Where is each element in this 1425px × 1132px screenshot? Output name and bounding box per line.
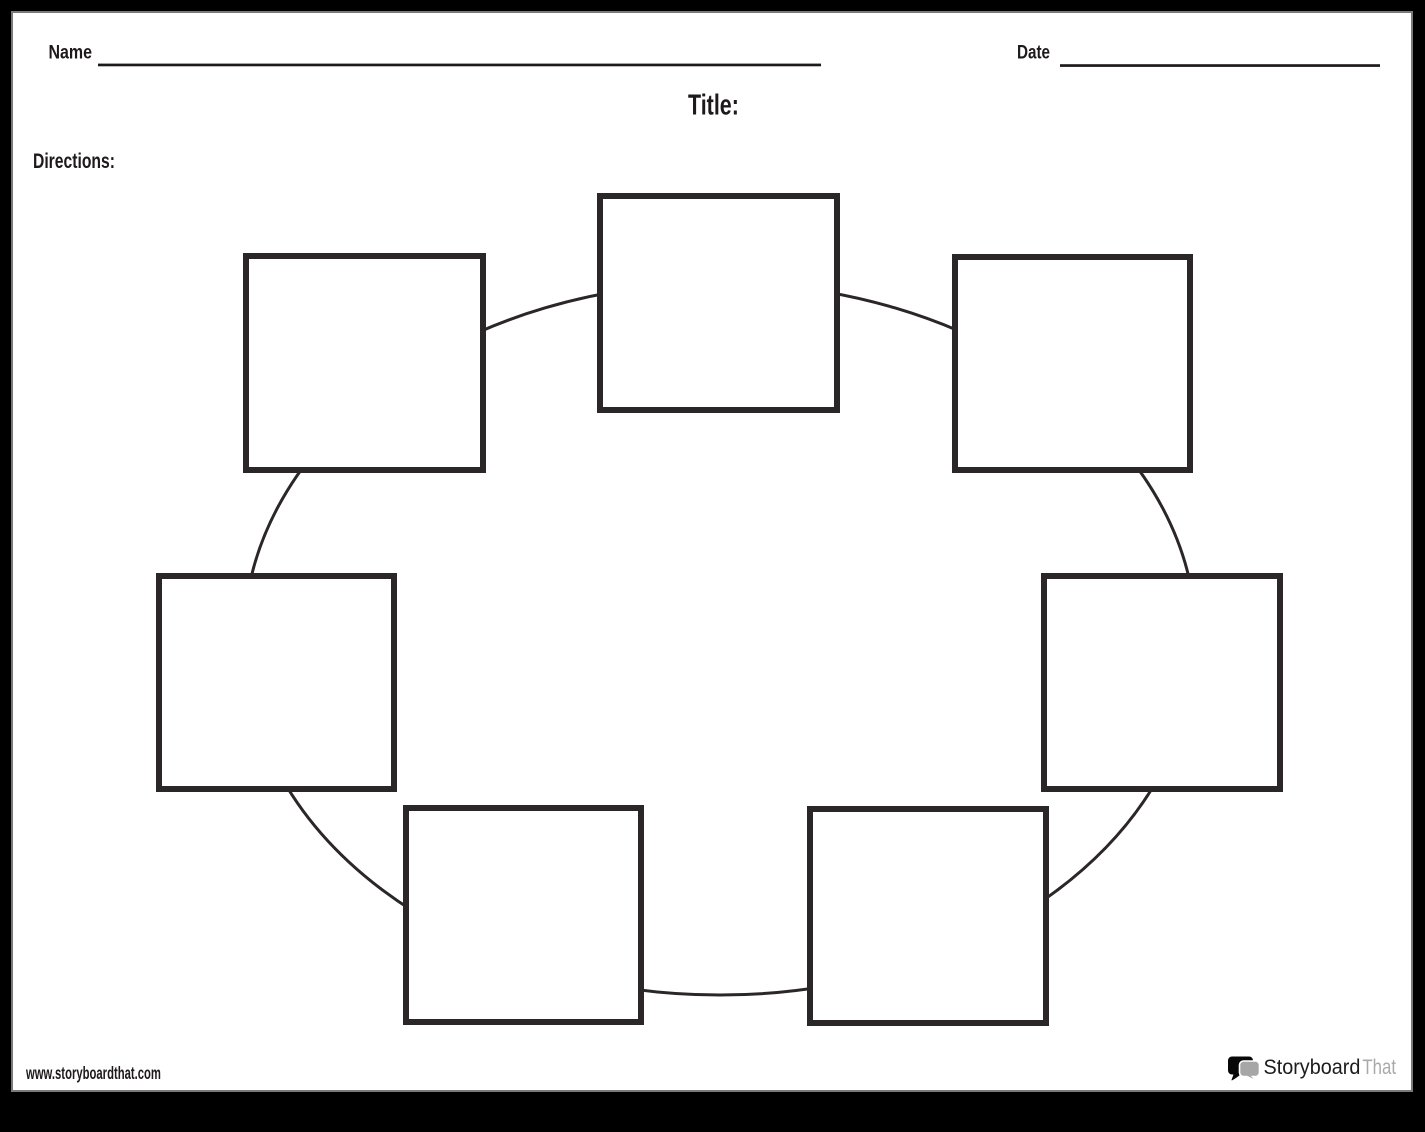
svg-text:Name: Name — [49, 41, 93, 63]
svg-text:Title:: Title: — [688, 89, 739, 121]
svg-text:That: That — [1362, 1057, 1396, 1080]
svg-text:Directions:: Directions: — [33, 149, 115, 173]
svg-text:www.storyboardthat.com: www.storyboardthat.com — [25, 1063, 161, 1083]
svg-text:Date: Date — [1017, 41, 1050, 63]
svg-text:Storyboard: Storyboard — [1264, 1057, 1361, 1080]
